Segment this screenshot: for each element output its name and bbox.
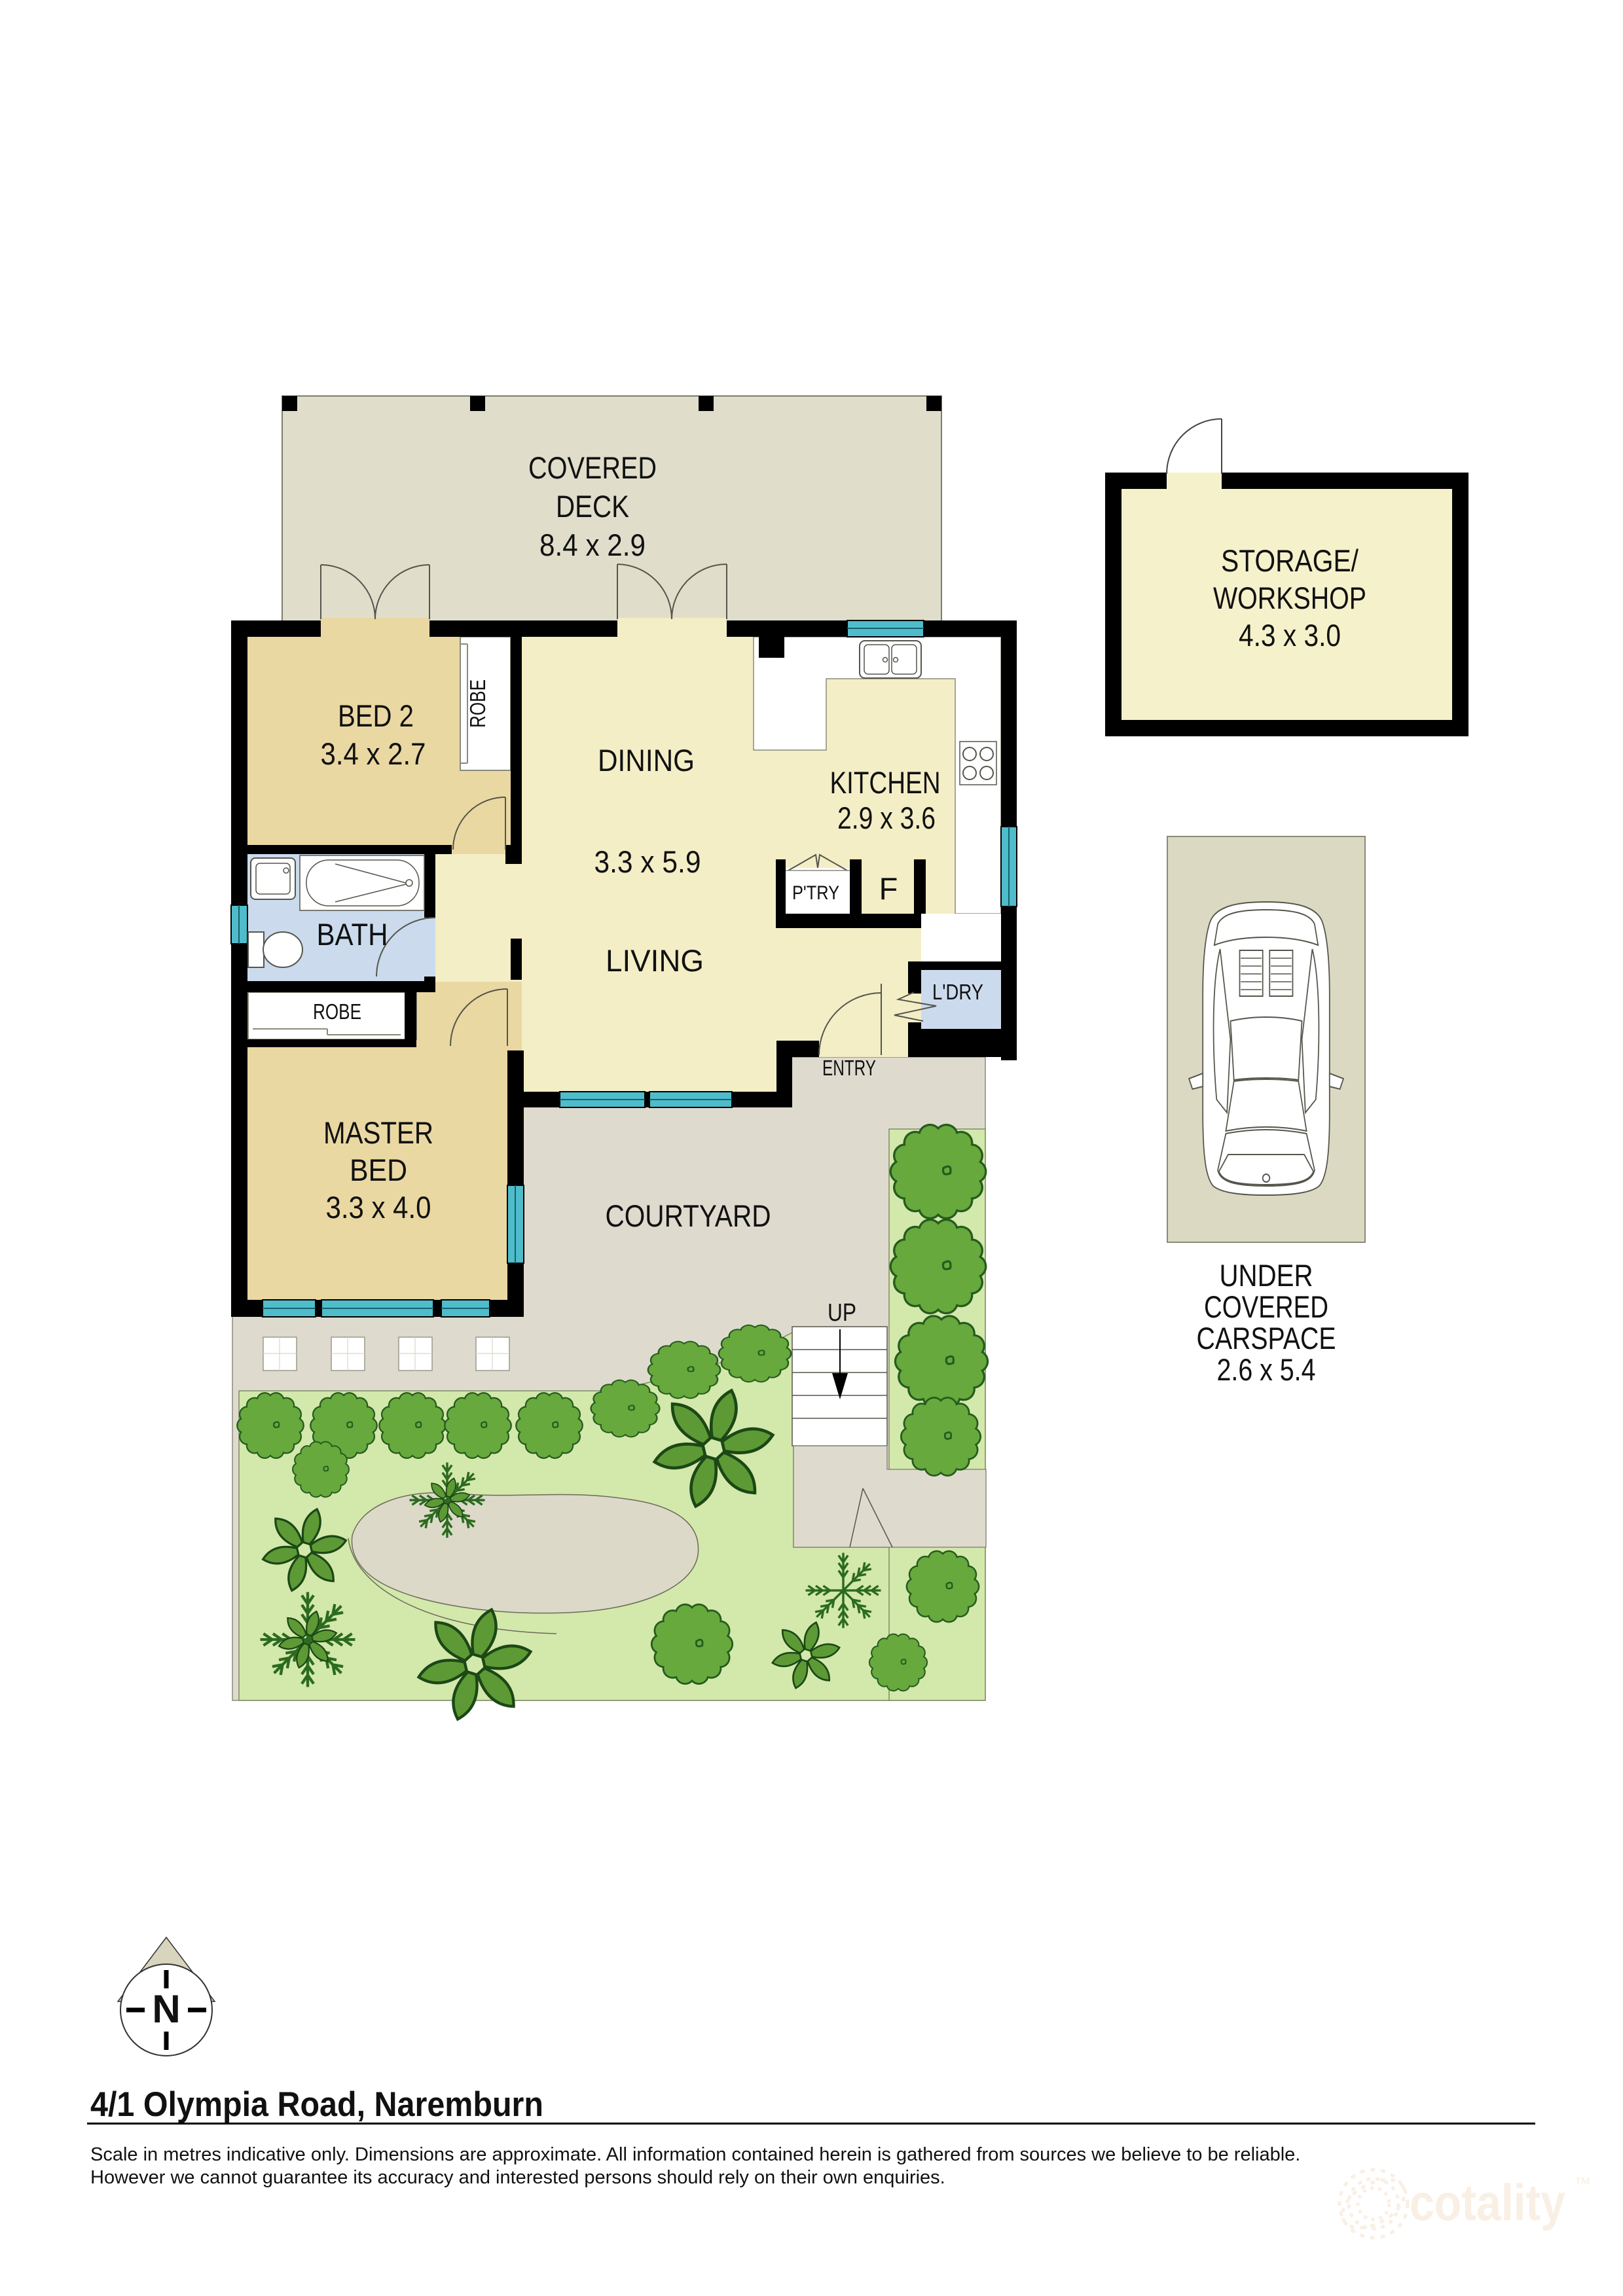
svg-text:ROBE: ROBE [313,999,361,1024]
svg-text:MASTER: MASTER [323,1115,433,1150]
svg-text:COVERED: COVERED [528,450,657,485]
svg-text:N: N [152,1987,180,2031]
svg-text:L'DRY: L'DRY [932,980,983,1004]
svg-text:However we cannot guarantee it: However we cannot guarantee its accuracy… [90,2167,945,2188]
svg-text:COURTYARD: COURTYARD [606,1198,771,1233]
svg-text:LIVING: LIVING [606,943,704,978]
svg-text:UNDER: UNDER [1220,1258,1313,1293]
svg-text:KITCHEN: KITCHEN [830,765,941,800]
svg-text:COVERED: COVERED [1204,1289,1328,1324]
svg-text:cotality: cotality [1410,2174,1565,2231]
svg-text:4.3 x 3.0: 4.3 x 3.0 [1239,618,1341,653]
svg-text:3.3 x 5.9: 3.3 x 5.9 [594,844,701,879]
svg-text:2.6 x 5.4: 2.6 x 5.4 [1217,1352,1316,1387]
svg-text:P'TRY: P'TRY [792,882,839,904]
svg-text:DINING: DINING [598,743,695,778]
svg-text:ROBE: ROBE [465,679,490,728]
svg-text:F: F [879,871,898,906]
svg-text:DECK: DECK [556,489,629,524]
svg-text:BED: BED [350,1153,407,1187]
svg-text:BED 2: BED 2 [338,698,414,733]
svg-text:Scale in metres indicative onl: Scale in metres indicative only. Dimensi… [90,2144,1300,2165]
svg-text:™: ™ [1574,2174,1591,2193]
svg-text:3.4 x 2.7: 3.4 x 2.7 [321,736,426,771]
svg-text:UP: UP [828,1299,856,1327]
svg-text:ENTRY: ENTRY [822,1056,876,1080]
svg-text:4/1 Olympia Road, Naremburn: 4/1 Olympia Road, Naremburn [90,2085,543,2124]
svg-text:8.4 x 2.9: 8.4 x 2.9 [539,528,646,562]
svg-text:WORKSHOP: WORKSHOP [1213,581,1366,615]
svg-text:3.3 x 4.0: 3.3 x 4.0 [326,1190,431,1225]
svg-text:2.9 x 3.6: 2.9 x 3.6 [837,800,936,835]
svg-text:STORAGE/: STORAGE/ [1221,543,1359,578]
svg-text:CARSPACE: CARSPACE [1197,1321,1336,1355]
svg-text:BATH: BATH [317,917,388,952]
